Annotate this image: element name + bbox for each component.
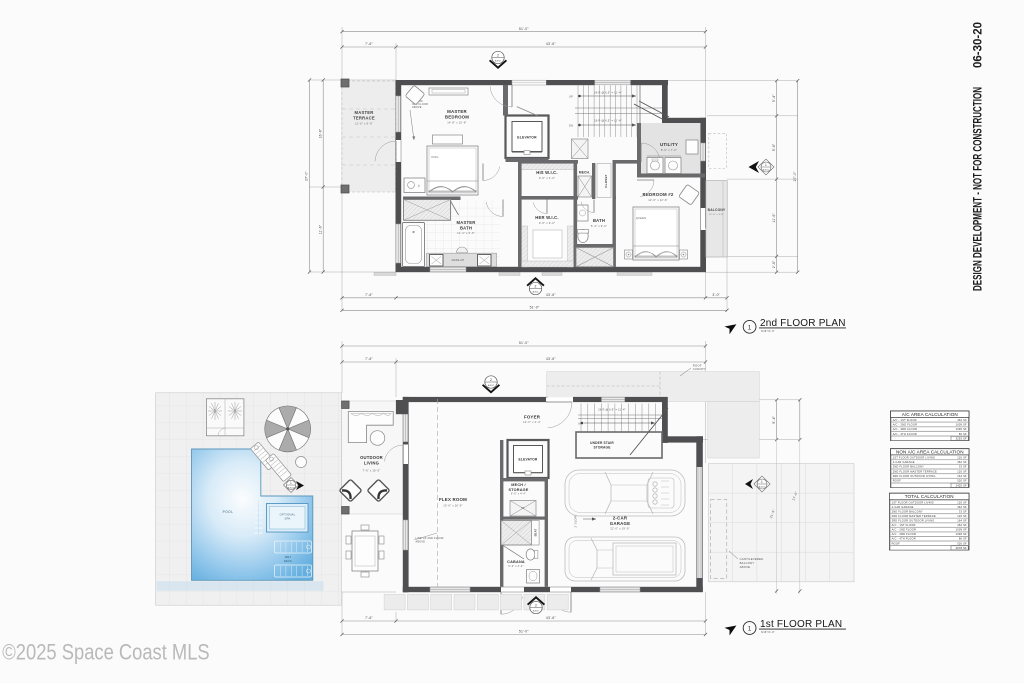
svg-text:⚲: ⚲ <box>418 184 421 188</box>
svg-text:120 SF: 120 SF <box>957 455 967 459</box>
svg-text:1: 1 <box>761 480 763 484</box>
svg-text:43'-6": 43'-6" <box>546 616 556 620</box>
svg-text:33 SF: 33 SF <box>959 465 967 469</box>
svg-text:A301: A301 <box>759 486 765 489</box>
svg-text:HIS W.I.C.: HIS W.I.C. <box>536 170 558 175</box>
svg-text:5'-4": 5'-4" <box>772 94 776 102</box>
svg-text:SPA: SPA <box>285 517 291 521</box>
svg-text:6'-0" x 4'-4": 6'-0" x 4'-4" <box>511 493 526 496</box>
svg-text:CABANA: CABANA <box>507 560 525 564</box>
svg-text:DN: DN <box>569 124 573 128</box>
svg-text:SEAT: SEAT <box>534 528 538 536</box>
svg-text:2: 2 <box>535 603 537 607</box>
svg-text:ABOVE: ABOVE <box>740 565 751 569</box>
svg-text:HER W.I.C.: HER W.I.C. <box>535 215 558 220</box>
svg-text:GARAGE: GARAGE <box>610 521 630 526</box>
svg-text:27'-0": 27'-0" <box>793 171 797 181</box>
svg-text:1ST FLOOR OUTDOOR LIVING: 1ST FLOOR OUTDOOR LIVING <box>893 455 935 459</box>
svg-text:ABOVE: ABOVE <box>416 540 426 543</box>
svg-text:120 SF: 120 SF <box>957 469 967 473</box>
svg-text:1425 SF: 1425 SF <box>956 483 967 487</box>
svg-text:A/C - 4TH FLOOR: A/C - 4TH FLOOR <box>893 432 917 436</box>
svg-text:BEDROOM #2: BEDROOM #2 <box>642 192 673 197</box>
svg-text:UP: UP <box>578 422 582 426</box>
svg-text:2: 2 <box>490 378 492 382</box>
svg-text:A/C - 2ND FLOOR: A/C - 2ND FLOOR <box>892 528 916 532</box>
svg-text:12'-0" x 12'-6": 12'-0" x 12'-6" <box>648 198 668 202</box>
svg-text:2: 2 <box>534 284 536 288</box>
svg-text:11'-6": 11'-6" <box>318 224 322 234</box>
svg-text:8'-0" x 7'-0": 8'-0" x 7'-0" <box>661 148 677 152</box>
svg-text:1st FLOOR PLAN: 1st FLOOR PLAN <box>760 619 842 630</box>
svg-text:7'-6": 7'-6" <box>365 293 373 297</box>
svg-text:9'-6": 9'-6" <box>772 143 776 151</box>
svg-text:1: 1 <box>290 481 292 485</box>
svg-text:120 SF: 120 SF <box>957 500 967 504</box>
svg-text:ELEVATOR: ELEVATOR <box>517 136 537 140</box>
svg-text:POOL: POOL <box>223 510 234 514</box>
svg-text:43'-6": 43'-6" <box>546 42 556 46</box>
svg-text:CLOSET: CLOSET <box>604 174 608 187</box>
svg-text:2nd FLOOR PLAN: 2nd FLOOR PLAN <box>760 318 846 329</box>
svg-text:5'-6" x 4'-0": 5'-6" x 4'-0" <box>508 565 523 568</box>
svg-text:1096 SF: 1096 SF <box>956 427 967 431</box>
svg-text:1609 SF: 1609 SF <box>956 423 967 427</box>
svg-text:A302: A302 <box>288 487 294 490</box>
svg-text:1609 SF: 1609 SF <box>956 528 967 532</box>
svg-text:526 SF: 526 SF <box>957 479 967 483</box>
svg-text:16 R @ 6.5" = 11'-4": 16 R @ 6.5" = 11'-4" <box>594 119 621 123</box>
svg-text:2ND FLOOR MASTER TERRACE: 2ND FLOOR MASTER TERRACE <box>892 514 936 518</box>
svg-text:2' SLOPE: 2' SLOPE <box>574 514 578 527</box>
svg-text:UNDER STAIR: UNDER STAIR <box>590 441 614 445</box>
svg-text:164 SF: 164 SF <box>957 519 967 523</box>
svg-text:51'-0": 51'-0" <box>530 306 540 310</box>
svg-text:STORAGE: STORAGE <box>593 445 610 449</box>
svg-text:43'-6": 43'-6" <box>546 293 556 297</box>
svg-text:3RD FLOOR OUTDOOR LIVING: 3RD FLOOR OUTDOOR LIVING <box>893 474 936 478</box>
svg-text:MASTER: MASTER <box>457 220 476 225</box>
svg-text:1: 1 <box>748 324 752 331</box>
svg-text:9'-6" x 9'-0": 9'-6" x 9'-0" <box>539 221 555 225</box>
svg-text:9'-4": 9'-4" <box>772 415 776 423</box>
svg-text:STORAGE: STORAGE <box>508 488 528 492</box>
svg-text:FOYER: FOYER <box>524 415 541 420</box>
svg-text:ROOF: ROOF <box>892 541 901 545</box>
svg-text:12'-0" x 4'-4": 12'-0" x 4'-4" <box>523 420 541 424</box>
svg-text:A302: A302 <box>495 60 501 63</box>
svg-text:UTILITY: UTILITY <box>660 142 678 147</box>
svg-text:MECH.: MECH. <box>579 171 590 175</box>
svg-text:HP: HP <box>521 507 525 510</box>
svg-text:2-CAR GARAGE: 2-CAR GARAGE <box>893 460 915 464</box>
svg-text:7'-6": 7'-6" <box>365 42 373 46</box>
svg-text:A/C - 4TH FLOOR: A/C - 4TH FLOOR <box>892 537 916 541</box>
svg-text:3RD FLOOR OUTDOOR LIVING: 3RD FLOOR OUTDOOR LIVING <box>892 519 935 523</box>
svg-text:A/C - 3RD FLOOR: A/C - 3RD FLOOR <box>893 427 917 431</box>
svg-text:2ND FLOOR BALCONY: 2ND FLOOR BALCONY <box>892 509 923 513</box>
svg-text:BATH: BATH <box>460 225 472 230</box>
svg-text:CANOPY: CANOPY <box>693 367 706 371</box>
svg-text:BEDROOM: BEDROOM <box>445 115 469 120</box>
svg-text:164 SF: 164 SF <box>957 474 967 478</box>
svg-text:2ND FLOOR BALCONY: 2ND FLOOR BALCONY <box>893 465 924 469</box>
svg-text:2-CAR GARAGE: 2-CAR GARAGE <box>892 505 914 509</box>
svg-text:A/C - 3RD FLOOR: A/C - 3RD FLOOR <box>892 532 916 536</box>
svg-text:2ND FLOOR MASTER TERRACE: 2ND FLOOR MASTER TERRACE <box>893 469 937 473</box>
svg-text:43'-6": 43'-6" <box>546 357 556 361</box>
svg-text:ELEVATOR: ELEVATOR <box>518 458 537 462</box>
svg-text:3/16"=1'-0": 3/16"=1'-0" <box>761 631 775 634</box>
svg-text:BALCONY: BALCONY <box>708 208 726 212</box>
svg-text:27'-0": 27'-0" <box>305 170 309 180</box>
svg-text:9'-6" x 4'-0": 9'-6" x 4'-0" <box>539 176 555 180</box>
svg-text:462 SF: 462 SF <box>957 523 967 527</box>
svg-text:UP: UP <box>569 95 573 99</box>
svg-text:A/C - 1ST FLOOR: A/C - 1ST FLOOR <box>892 523 916 527</box>
svg-text:3/16"=1'-0": 3/16"=1'-0" <box>761 330 775 333</box>
svg-text:462 SF: 462 SF <box>957 505 967 509</box>
svg-text:86 SF: 86 SF <box>959 537 967 541</box>
svg-text:51'-0": 51'-0" <box>519 27 529 31</box>
svg-text:14'-8" x 15'-8": 14'-8" x 15'-8" <box>447 121 467 125</box>
svg-text:DESIGN DEVELOPMENT - NOT FOR C: DESIGN DEVELOPMENT - NOT FOR CONSTRUCTIO… <box>973 87 985 291</box>
svg-text:526 SF: 526 SF <box>957 541 967 545</box>
svg-text:KING: KING <box>431 155 438 159</box>
svg-text:16'-6": 16'-6" <box>318 128 322 138</box>
svg-text:11'-6" x 3'-6": 11'-6" x 3'-6" <box>709 214 724 216</box>
svg-text:13'-6" x 26'-6": 13'-6" x 26'-6" <box>443 503 463 507</box>
svg-text:NON A/C AREA CALCULATION: NON A/C AREA CALCULATION <box>896 449 964 454</box>
svg-text:MASTER: MASTER <box>355 110 374 115</box>
svg-text:3'-0": 3'-0" <box>712 293 720 297</box>
svg-text:BATH: BATH <box>593 218 605 223</box>
svg-text:©2025 Space Coast MLS: ©2025 Space Coast MLS <box>2 640 209 665</box>
svg-text:3253 SF: 3253 SF <box>956 436 967 440</box>
svg-text:462 SF: 462 SF <box>957 418 967 422</box>
svg-text:26 R @ 6.5" = 11'-4": 26 R @ 6.5" = 11'-4" <box>598 408 625 412</box>
svg-text:86 SF: 86 SF <box>959 432 967 436</box>
svg-text:1: 1 <box>748 626 752 633</box>
svg-text:A301: A301 <box>763 169 769 172</box>
svg-text:A302: A302 <box>533 291 539 294</box>
svg-text:2: 2 <box>497 53 499 57</box>
svg-text:1: 1 <box>765 163 767 167</box>
svg-text:22'-0" x 19'-0": 22'-0" x 19'-0" <box>610 527 630 531</box>
svg-text:1096 SF: 1096 SF <box>956 532 967 536</box>
svg-text:TERRACE: TERRACE <box>353 116 375 121</box>
svg-text:51'-0": 51'-0" <box>519 341 529 345</box>
svg-text:MECH /: MECH / <box>511 483 526 487</box>
svg-text:FLEX ROOM: FLEX ROOM <box>439 497 467 502</box>
svg-text:462 SF: 462 SF <box>957 460 967 464</box>
svg-text:A302: A302 <box>488 384 494 387</box>
svg-text:WET: WET <box>285 555 292 559</box>
svg-text:DECK: DECK <box>284 559 292 563</box>
svg-text:TOTAL CALCULATION: TOTAL CALCULATION <box>905 494 954 499</box>
svg-text:7'-6" x 16'-0": 7'-6" x 16'-0" <box>363 469 381 473</box>
svg-text:A/C - 1ST FLOOR: A/C - 1ST FLOOR <box>893 418 917 422</box>
svg-text:QUEEN: QUEEN <box>636 216 646 220</box>
svg-text:11'-6": 11'-6" <box>772 212 776 222</box>
svg-text:33 SF: 33 SF <box>959 509 967 513</box>
svg-text:4678 SF: 4678 SF <box>956 546 967 550</box>
svg-text:LIVING: LIVING <box>364 460 379 465</box>
svg-text:ABOVE: ABOVE <box>412 106 422 109</box>
svg-text:7'-6": 7'-6" <box>365 357 373 361</box>
svg-text:OUTDOOR: OUTDOOR <box>360 455 383 460</box>
svg-text:11'-4" x 9'-6": 11'-4" x 9'-6" <box>457 231 475 235</box>
svg-text:A/C - 2ND FLOOR: A/C - 2ND FLOOR <box>893 423 917 427</box>
svg-text:ROOF: ROOF <box>893 479 902 483</box>
svg-text:A/C AREA CALCULATION: A/C AREA CALCULATION <box>902 412 958 417</box>
svg-text:06-30-20: 06-30-20 <box>973 22 985 68</box>
svg-text:MASTER: MASTER <box>447 109 467 114</box>
svg-text:MAKE-UP: MAKE-UP <box>452 259 465 262</box>
svg-text:26 R @ 6.5" = 11'-4": 26 R @ 6.5" = 11'-4" <box>594 91 621 95</box>
svg-text:7'-6": 7'-6" <box>365 616 373 620</box>
svg-text:5'-4" x 9'-0": 5'-4" x 9'-0" <box>591 224 607 228</box>
svg-text:51'-0": 51'-0" <box>519 630 529 634</box>
svg-text:A302: A302 <box>533 610 539 613</box>
svg-text:2'-6": 2'-6" <box>772 260 776 268</box>
svg-text:1ST FLOOR OUTDOOR LIVING: 1ST FLOOR OUTDOOR LIVING <box>892 500 934 504</box>
svg-text:120 SF: 120 SF <box>957 514 967 518</box>
svg-text:11'-6" x 9'-0": 11'-6" x 9'-0" <box>355 122 373 126</box>
